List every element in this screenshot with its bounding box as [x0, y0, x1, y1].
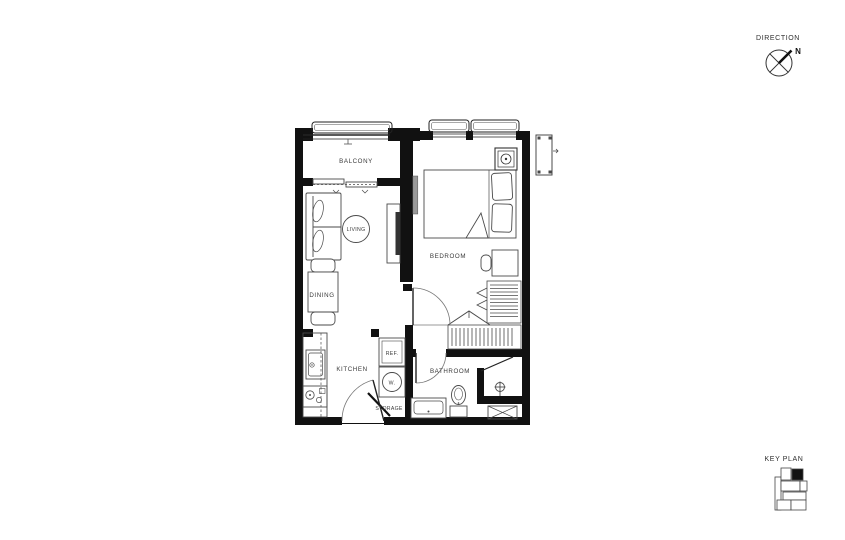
stove: [303, 386, 327, 407]
bedroom-bay-windows: [429, 120, 519, 137]
bed: [424, 170, 516, 238]
balcony-railing: [303, 122, 392, 144]
balcony-label: BALCONY: [339, 158, 373, 165]
bathroom-label: BATHROOM: [430, 368, 470, 375]
storage-label: STORAGE: [375, 406, 403, 412]
sofa: [306, 193, 341, 260]
kitchen-label: KITCHEN: [336, 366, 367, 373]
vanity-sink: [411, 398, 446, 418]
living-label: LIVING: [347, 227, 366, 233]
north-label: N: [795, 47, 801, 56]
ac-condenser-unit: [536, 135, 558, 175]
washer-label: W.: [389, 381, 396, 387]
shower: [481, 357, 517, 419]
floorplan-drawing: BALCONY LIVING DINING KITCHEN BEDROOM BA…: [288, 113, 567, 435]
key-plan-footprint: [775, 468, 807, 510]
bedroom-wall-panel: [413, 176, 418, 214]
north-needle: [779, 51, 792, 64]
direction-compass: DIRECTION N: [740, 25, 820, 85]
bedroom-label: BEDROOM: [430, 253, 466, 260]
ceiling-ac-icon: [495, 148, 517, 170]
shower-head-icon: [495, 382, 506, 397]
key-plan: KEY PLAN: [750, 448, 830, 520]
bedroom-door: [413, 288, 450, 325]
shower-door: [481, 357, 513, 371]
wardrobe-vertical: [477, 281, 521, 323]
kitchen-sink: [306, 350, 325, 379]
pillow: [491, 172, 512, 200]
dining-label: DINING: [309, 292, 334, 299]
compass-icon: [766, 50, 792, 76]
toilet: [450, 386, 467, 418]
kitchen-counter: [303, 333, 327, 417]
direction-title: DIRECTION: [756, 35, 800, 42]
pillow: [492, 204, 513, 233]
fridge-label: REF.: [386, 351, 398, 357]
floorplan-page: BALCONY LIVING DINING KITCHEN BEDROOM BA…: [0, 0, 845, 540]
desk-and-chair: [481, 250, 518, 276]
key-plan-title: KEY PLAN: [765, 456, 804, 463]
balcony-sliding-door: [313, 179, 377, 193]
highlighted-unit: [792, 469, 803, 480]
tv-icon: [396, 212, 401, 255]
tv-console: [387, 204, 401, 263]
